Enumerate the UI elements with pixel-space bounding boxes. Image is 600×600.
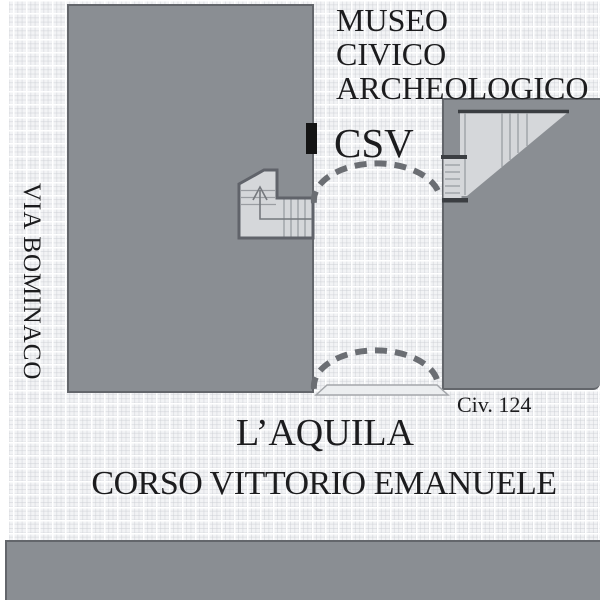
csv-label: CSV <box>334 123 414 164</box>
left-building-block <box>67 4 314 393</box>
museum-label: MUSEO CIVICO ARCHEOLOGICO <box>336 3 588 105</box>
museum-label-line1: MUSEO <box>336 3 588 37</box>
museum-label-line3: ARCHEOLOGICO <box>336 71 588 105</box>
left-white-margin <box>0 0 9 600</box>
bottom-building-block <box>5 540 600 600</box>
street-label-corso-vittorio-emanuele: CORSO VITTORIO EMANUELE <box>74 465 574 503</box>
street-label-via-bominaco: VIA BOMINACO <box>17 183 45 383</box>
right-building-block <box>442 98 600 390</box>
location-map: MUSEO CIVICO ARCHEOLOGICO CSV VIA BOMINA… <box>0 0 600 600</box>
city-label: L’AQUILA <box>150 411 500 455</box>
museum-label-line2: CIVICO <box>336 37 588 71</box>
